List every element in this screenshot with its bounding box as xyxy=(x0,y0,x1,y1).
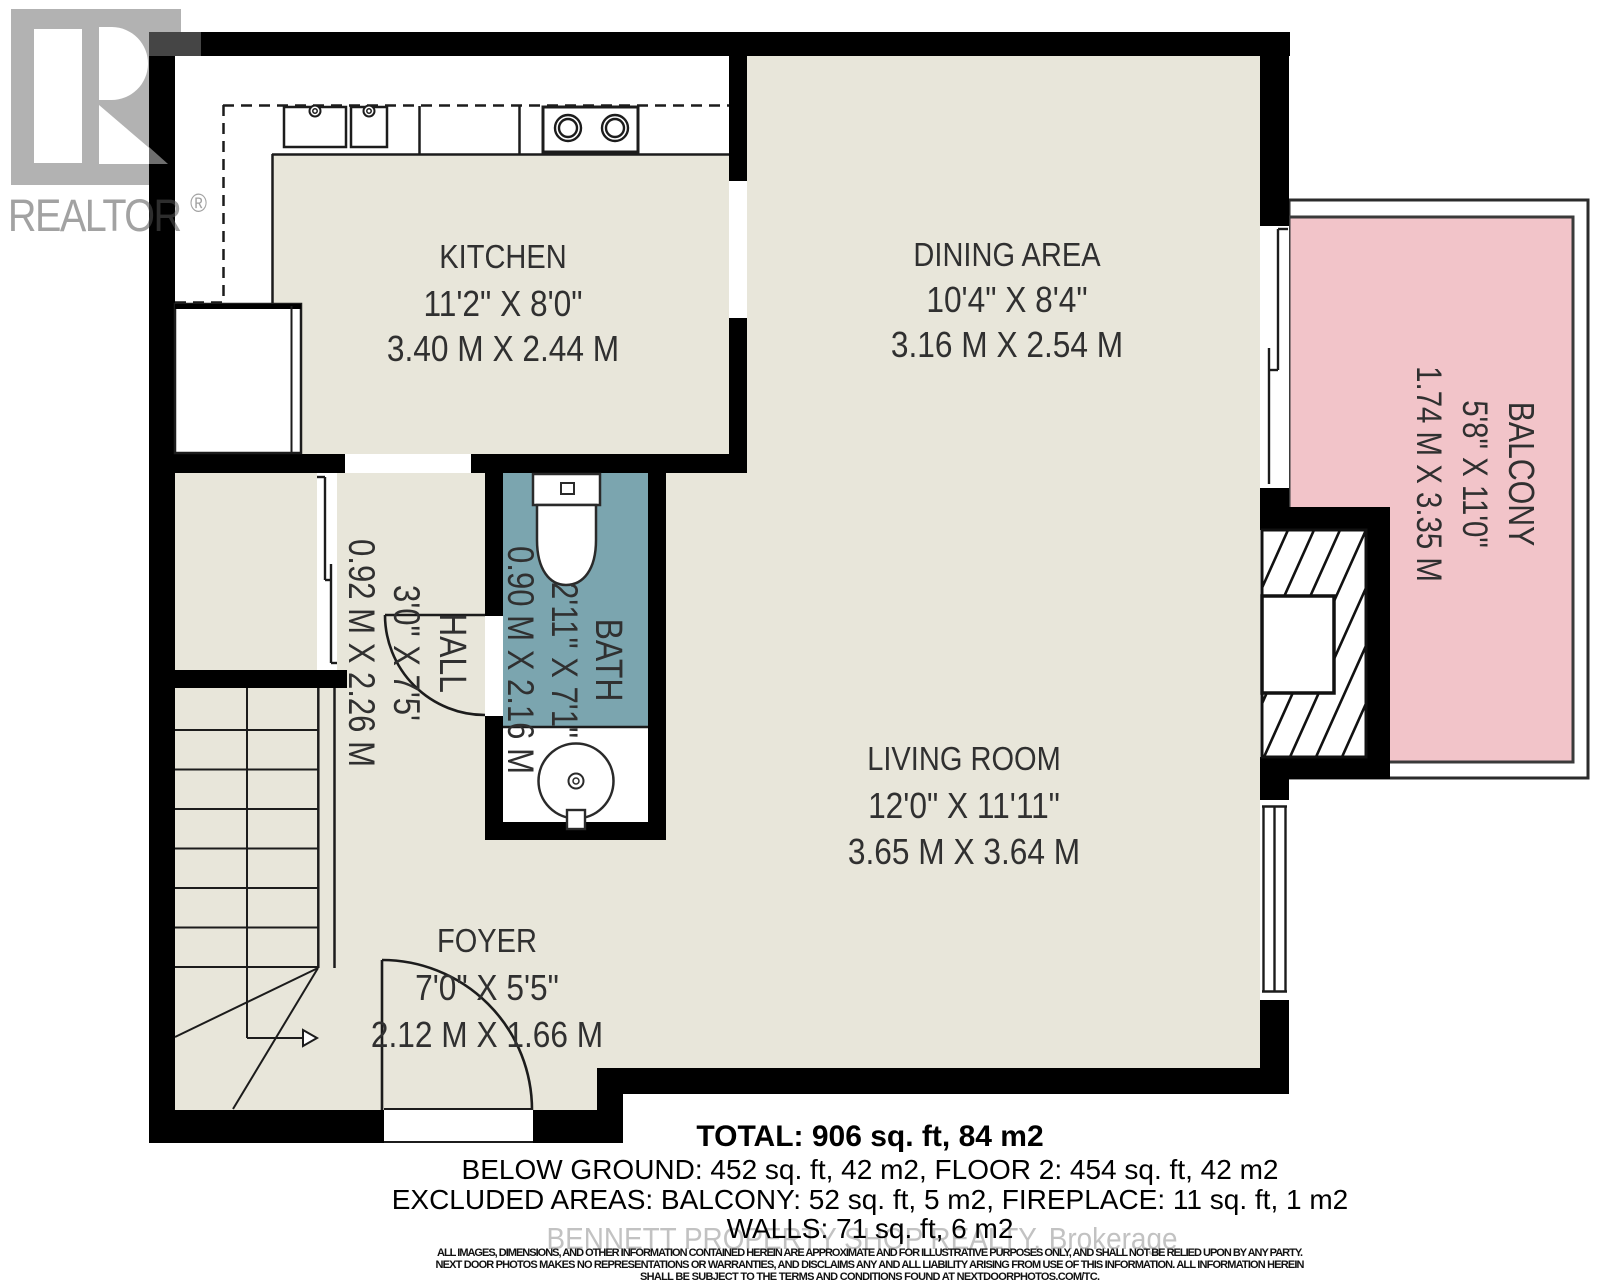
svg-text:10'4" X 8'4": 10'4" X 8'4" xyxy=(926,280,1087,320)
svg-text:7'0" X 5'5": 7'0" X 5'5" xyxy=(415,968,559,1008)
svg-text:11'2" X 8'0": 11'2" X 8'0" xyxy=(424,284,583,324)
svg-text:LIVING ROOM: LIVING ROOM xyxy=(867,740,1061,777)
svg-text:BALCONY: BALCONY xyxy=(1500,402,1540,546)
svg-text:SHALL BE SUBJECT TO THE TERMS: SHALL BE SUBJECT TO THE TERMS AND CONDIT… xyxy=(640,1271,1100,1283)
svg-text:3.65 M X 3.64 M: 3.65 M X 3.64 M xyxy=(848,832,1080,872)
svg-text:WALLS: 71 sq. ft, 6 m2: WALLS: 71 sq. ft, 6 m2 xyxy=(727,1213,1014,1244)
svg-text:0.90 M X 2.16 M: 0.90 M X 2.16 M xyxy=(499,546,540,774)
svg-text:3'0" X 7'5': 3'0" X 7'5' xyxy=(385,585,426,721)
svg-text:1.74 M X 3.35 M: 1.74 M X 3.35 M xyxy=(1409,366,1448,582)
svg-text:FOYER: FOYER xyxy=(437,922,537,959)
svg-text:KITCHEN: KITCHEN xyxy=(439,238,566,275)
svg-text:EXCLUDED AREAS: BALCONY: 52 sq: EXCLUDED AREAS: BALCONY: 52 sq. ft, 5 m2… xyxy=(392,1184,1349,1215)
svg-text:ALL IMAGES, DIMENSIONS, AND OT: ALL IMAGES, DIMENSIONS, AND OTHER INFORM… xyxy=(437,1247,1303,1259)
svg-text:2.12 M X 1.66 M: 2.12 M X 1.66 M xyxy=(371,1015,603,1055)
svg-text:DINING AREA: DINING AREA xyxy=(913,236,1100,273)
svg-text:HALL: HALL xyxy=(431,613,473,693)
svg-text:BELOW GROUND: 452 sq. ft, 42 m: BELOW GROUND: 452 sq. ft, 42 m2, FLOOR 2… xyxy=(462,1154,1279,1185)
svg-text:3.40 M X 2.44 M: 3.40 M X 2.44 M xyxy=(387,329,619,369)
svg-text:3.16 M X 2.54 M: 3.16 M X 2.54 M xyxy=(891,325,1123,365)
svg-text:®: ® xyxy=(190,190,207,219)
svg-text:BATH: BATH xyxy=(587,619,629,702)
svg-text:NEXT DOOR PHOTOS MAKES NO REPR: NEXT DOOR PHOTOS MAKES NO REPRESENTATION… xyxy=(435,1259,1304,1271)
svg-text:12'0" X 11'11": 12'0" X 11'11" xyxy=(868,786,1060,826)
svg-text:TOTAL: 906 sq. ft, 84 m2: TOTAL: 906 sq. ft, 84 m2 xyxy=(696,1120,1043,1153)
svg-text:5'8" X 11'0": 5'8" X 11'0" xyxy=(1455,400,1494,548)
svg-text:2'11" X 7'1": 2'11" X 7'1" xyxy=(543,582,584,738)
svg-text:0.92 M X 2.26 M: 0.92 M X 2.26 M xyxy=(340,539,381,767)
